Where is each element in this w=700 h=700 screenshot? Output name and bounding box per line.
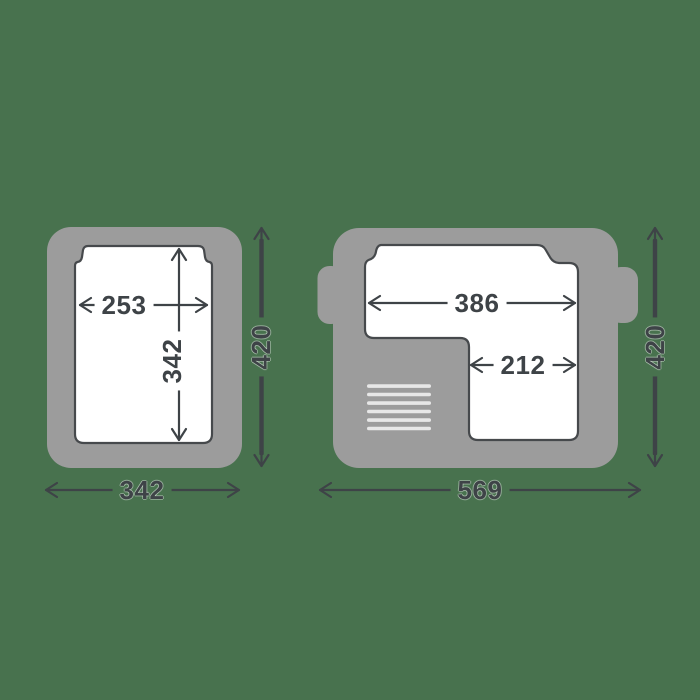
dim-label-left-outer-depth: 420 — [247, 318, 275, 377]
left-unit-interior — [75, 246, 212, 443]
dim-label-left-inner-width: 253 — [95, 291, 154, 319]
dim-label-left-outer-width: 342 — [113, 476, 172, 504]
dim-label-right-outer-depth: 420 — [641, 318, 669, 377]
dim-label-right-lower-width: 212 — [494, 351, 553, 379]
dim-label-right-outer-width: 569 — [451, 476, 510, 504]
dim-label-right-main-width: 386 — [448, 289, 507, 317]
dimension-diagram: 253 342 420 342 386 212 420 569 — [0, 0, 700, 700]
dim-label-left-inner-depth: 342 — [158, 332, 186, 391]
diagram-canvas — [0, 0, 700, 700]
